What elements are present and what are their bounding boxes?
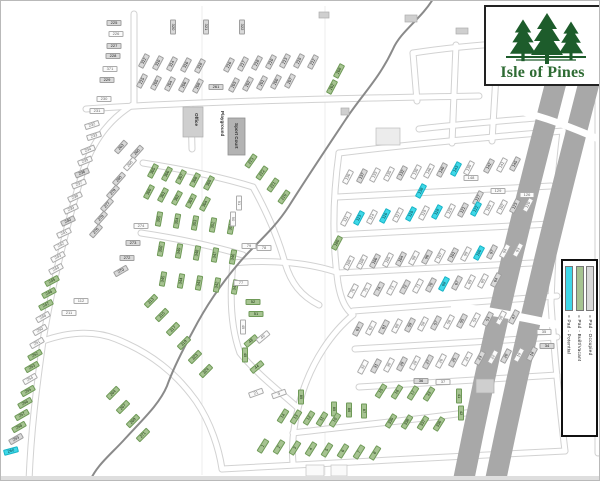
lot-pad: 99 (460, 246, 472, 262)
lot-pad: 111 (340, 211, 352, 227)
lot-pad: 107 (434, 248, 446, 264)
lot-pad: 47 (508, 309, 520, 325)
lot-pad: 251 (29, 337, 45, 350)
lot-pad: 86 (346, 403, 352, 418)
lot-pad: 252 (27, 349, 43, 362)
lot-pad: 274 (134, 223, 149, 229)
lot-pad: 138 (415, 183, 427, 199)
lot-pad: 21 (248, 388, 264, 399)
lot-pad: 34 (540, 343, 555, 349)
lot-pad: 106 (369, 253, 381, 269)
lot-pad: 321 (203, 20, 209, 35)
lot-pad: 233 (86, 131, 102, 141)
lot-pad: 129 (491, 188, 506, 194)
lot-pad: 30 (383, 357, 395, 373)
lot-pad: 53 (482, 311, 494, 327)
lot-pad: 309 (203, 175, 215, 191)
lot-pad: 123 (509, 198, 521, 214)
lot-pad: 67 (451, 275, 463, 291)
lot-pad: 339 (384, 413, 397, 429)
lot-pad: 44 (249, 360, 264, 374)
lot-pad: 345 (159, 271, 168, 287)
lot-pad: 148 (464, 175, 479, 181)
lot-pad: 17 (406, 385, 419, 401)
lot-pad: 52 (246, 299, 261, 305)
lot-pad: 78 (257, 245, 272, 251)
lot-pad: 245 (44, 275, 60, 287)
lot-pad: 319 (177, 336, 192, 351)
lot-pad: 74 (373, 281, 385, 297)
lot-pad: 36 (414, 378, 429, 384)
lot-pad: 312 (138, 53, 150, 69)
lot-pad: 29 (396, 356, 408, 372)
lot-pad: 240 (60, 215, 76, 227)
lot-pad: 267 (116, 400, 131, 415)
lot-pad: 222 (255, 165, 269, 181)
lot-pad: 248 (35, 311, 51, 324)
lot-pad: 60 (391, 318, 403, 334)
lot-pad: 263 (114, 139, 128, 154)
lot-pad: 246 (41, 287, 57, 299)
lot-pad: 354 (173, 213, 182, 229)
lot-pad: 19 (513, 347, 525, 363)
lot-pad: 226 (109, 31, 124, 37)
lot-pad: 269 (126, 414, 141, 429)
lot-pad: 45 (242, 348, 248, 363)
lot-pad: 347 (211, 247, 220, 263)
lot-pad: 50 (495, 310, 507, 326)
lot-pad: 277 (100, 197, 114, 212)
lot-pad: 350 (157, 241, 166, 257)
lot-pad: 234 (80, 144, 96, 155)
lot-pad: 318 (194, 58, 206, 74)
lot-pad: 216 (223, 57, 235, 73)
lot-pad: 9 (271, 389, 287, 400)
lot-pad: 54 (469, 312, 481, 328)
lot-pad: 313 (144, 294, 159, 309)
lot-pad: 14 (276, 408, 289, 424)
park-map-page: Office Playground Sport Court 2252262272… (0, 0, 600, 481)
lot-pad: 27 (422, 354, 434, 370)
lot-pad: 79 (242, 243, 257, 249)
lot-pad: 225 (107, 20, 122, 26)
lot-pad: 271 (136, 428, 151, 443)
lot-pad: 116 (379, 208, 391, 224)
lot-pad: 243 (50, 251, 66, 263)
lot-pad: 57 (430, 315, 442, 331)
lot-pad: 55 (456, 313, 468, 329)
lot-pad: 262 (326, 79, 338, 95)
lot-pad: 337 (416, 415, 429, 431)
lot-pad: 65 (477, 273, 489, 289)
lot-pad: 202 (242, 76, 254, 92)
lot-pad: 102 (496, 199, 508, 215)
lot-pad: 223 (244, 153, 258, 169)
lot-pad: 272 (120, 255, 135, 261)
lot-pad: 343 (195, 275, 204, 291)
lot-pad: 32 (357, 359, 369, 375)
lot-pad: 93 (512, 242, 524, 258)
lot-pad: 278 (94, 210, 108, 225)
lot-pad: 257 (14, 409, 30, 422)
lot-pad: 308 (189, 172, 201, 188)
lot-pad: 100 (473, 245, 485, 261)
lot-pad: 253 (24, 361, 40, 374)
lot-pad: 180 (331, 235, 343, 251)
lot-pad: 208 (192, 78, 204, 94)
lot-pad: 235 (77, 155, 93, 166)
legend-item-potential: = Pad - Potential (564, 266, 574, 435)
lot-pad: 219 (293, 53, 305, 69)
lot-pad: 109 (343, 255, 355, 271)
map-legend: = Pad - Potential = Pad - Built/Vacant =… (561, 259, 598, 437)
lot-pad: 322 (239, 20, 245, 35)
lot-pad: 56 (443, 314, 455, 330)
lot-pad: 259 (8, 433, 24, 446)
lot-pad: 314 (166, 56, 178, 72)
lot-pad: 218 (251, 55, 263, 71)
lot-pad: 371 (103, 66, 118, 72)
lot-pad: 31 (370, 358, 382, 374)
legend-item-occupied: = Pad - Occupied (585, 266, 595, 435)
lot-pad: 35 (537, 329, 552, 335)
lot-pad: 11 (315, 411, 328, 427)
lot-pad: 63 (352, 321, 364, 337)
lot-pad: 307 (175, 169, 187, 185)
lot-pad: 207 (284, 73, 296, 89)
lot-pad: 247 (38, 299, 54, 311)
lot-pad: 256 (17, 397, 33, 410)
lot-pad: 108 (356, 254, 368, 270)
lot-pad: 26 (435, 353, 447, 369)
legend-swatch-occupied (586, 266, 594, 311)
lot-pad: 232 (84, 120, 100, 130)
lot-pad: 33 (422, 386, 435, 402)
lot-pad: 205 (150, 75, 162, 91)
lot-pad: 260 (3, 446, 19, 456)
lot-pad: 203 (228, 77, 240, 93)
lot-pad: 239 (63, 203, 79, 215)
lot-pad: 42 (458, 406, 464, 421)
lot-pad: 104 (395, 251, 407, 267)
lot-pad: 238 (67, 191, 83, 203)
lot-pad: 15 (374, 383, 387, 399)
lot-pad: 72 (399, 279, 411, 295)
lot-pad: 270 (113, 265, 129, 278)
legend-item-built-vacant: = Pad - Built/Vacant (575, 266, 585, 435)
lot-pad: 16 (390, 384, 403, 400)
pine-trees-icon (486, 7, 600, 65)
lot-pad: 141 (496, 157, 508, 173)
lot-pad: 317 (166, 322, 181, 337)
lot-pad: 200 (270, 74, 282, 90)
lot-pad: 261 (209, 84, 224, 90)
lot-pad: 305 (147, 163, 159, 179)
lot-pad: 90 (230, 212, 236, 227)
lot-pad: 117 (392, 207, 404, 223)
lot-pad: 94 (499, 243, 511, 259)
lot-pad: 98 (408, 250, 420, 266)
lot-pad: 76 (347, 283, 359, 299)
lot-pad: 146 (423, 163, 435, 179)
lot-pad: 344 (177, 273, 186, 289)
lot-pad: 206 (178, 77, 190, 93)
lot-pad: 237 (71, 178, 87, 189)
lot-pad: 346 (229, 249, 238, 265)
lot-pad: 280 (112, 171, 126, 186)
lot-pad: 105 (382, 252, 394, 268)
lot-pad: 135 (383, 166, 395, 182)
lot-pad: 71 (412, 278, 424, 294)
lot-pad: 18 (526, 346, 538, 362)
lot-pad: 241 (56, 227, 72, 239)
lot-pad: 336 (432, 416, 445, 432)
lot-pad: 310 (152, 55, 164, 71)
lot-pad: 229 (100, 77, 115, 83)
lot-pad: 268 (333, 63, 345, 79)
lot-pad: 236 (74, 167, 90, 178)
lot-pad: 145 (509, 156, 521, 172)
lot-pad: 258 (11, 421, 27, 434)
lot-pad: 315 (155, 308, 170, 323)
lot-pad: 316 (180, 57, 192, 73)
lot-pad: 215 (136, 73, 148, 89)
lot-pad: 23 (474, 350, 486, 366)
lot-pad: 7 (352, 444, 365, 460)
lot-pad: 266 (123, 156, 137, 171)
lot-pad: 120 (522, 197, 534, 213)
logo-box: Isle of Pines (484, 5, 600, 86)
lot-pad: 353 (191, 215, 200, 231)
lot-pad: 130 (410, 164, 422, 180)
lot-pad: 87 (361, 404, 367, 419)
lot-pad: 77 (234, 280, 249, 286)
lot-pad: 22 (487, 349, 499, 365)
lot-pad: 59 (404, 317, 416, 333)
lot-pad: 61 (378, 319, 390, 335)
lot-pad: 103 (483, 200, 495, 216)
lot-pad: 41 (456, 389, 462, 404)
lot-pad: 230 (97, 96, 112, 102)
lot-pad: 89 (298, 390, 304, 405)
lot-pad: 118 (431, 204, 443, 220)
lot-pad: 228 (106, 53, 121, 59)
lot-pad: 264 (106, 386, 121, 401)
lot-pad: 68 (438, 276, 450, 292)
lot-pad: 300 (143, 184, 155, 200)
lot-pad: 75 (360, 282, 372, 298)
lot-pad: 70 (425, 277, 437, 293)
lot-pad: 276 (89, 223, 103, 238)
lot-pad: 133 (369, 167, 381, 183)
lot-pad: 227 (107, 43, 122, 49)
lot-pad: 349 (175, 243, 184, 259)
lot-pad: 279 (106, 184, 120, 199)
lot-pad: 320 (170, 20, 176, 35)
legend-label-built-vacant: = Pad - Built/Vacant (577, 315, 582, 361)
lot-pad: 125 (444, 203, 456, 219)
lot-pad: 355 (155, 211, 164, 227)
lot-pad: 142 (483, 158, 495, 174)
lot-pad: 113 (353, 210, 365, 226)
lot-pad: 301 (157, 187, 169, 203)
park-logo-title: Isle of Pines (486, 64, 599, 82)
lot-pad: 137 (356, 168, 368, 184)
lot-pad: 204 (164, 76, 176, 92)
lot-pad: 6 (336, 443, 349, 459)
lot-pad: 244 (48, 263, 64, 275)
lot-pad: 304 (199, 196, 211, 212)
lot-pad: 342 (213, 277, 222, 293)
lot-pad: 64 (490, 272, 502, 288)
lot-pad: 132 (396, 165, 408, 181)
lot-pad: 4 (304, 441, 317, 457)
lot-pad: 136 (342, 169, 354, 185)
lot-pad: 112 (74, 298, 89, 304)
lot-pad: 62 (365, 320, 377, 336)
lot-pad: 49 (240, 320, 246, 335)
lot-pad: 24 (461, 351, 473, 367)
lot-pad: 210 (265, 54, 277, 70)
lot-pad: 97 (486, 244, 498, 260)
lot-pad: 143 (450, 161, 462, 177)
lot-pad: 213 (279, 53, 291, 69)
lot-pad: 12 (302, 410, 315, 426)
lot-pad: 212 (307, 54, 319, 70)
lot-pad: 324 (199, 364, 214, 379)
lot-pad: 121 (457, 202, 469, 218)
lot-pad: 348 (193, 245, 202, 261)
lot-pad: 201 (256, 75, 268, 91)
legend-label-potential: = Pad - Potential (566, 315, 571, 354)
lot-pad: 46 (255, 330, 270, 344)
lot-pad: 101 (447, 247, 459, 263)
lot-pad: 254 (22, 373, 38, 386)
lot-pad: 250 (32, 324, 48, 337)
lot-pad: 302 (171, 190, 183, 206)
lot-pad: 273 (126, 240, 141, 246)
lot-pad: 20 (500, 348, 512, 364)
lot-pad: 306 (161, 166, 173, 182)
lot-pad: 37 (436, 379, 451, 385)
lot-pad: 69 (464, 274, 476, 290)
lot-pad: 3 (288, 440, 301, 456)
lot-pad: 8 (368, 445, 381, 461)
lot-pad: 28 (409, 355, 421, 371)
lot-pad: 96 (421, 249, 433, 265)
lot-pad: 323 (188, 350, 203, 365)
lot-pad: 255 (20, 385, 36, 398)
lot-pad: 58 (417, 316, 429, 332)
lot-pad: 2 (272, 439, 285, 455)
lot-pad: 91 (236, 196, 242, 211)
lot-pad: 126 (520, 192, 535, 198)
lot-pad: 140 (436, 162, 448, 178)
lot-pad: 217 (237, 56, 249, 72)
lot-pad: 119 (418, 205, 430, 221)
lot-pad: 110 (405, 206, 417, 222)
lot-pad: 13 (289, 409, 302, 425)
lot-pad: 242 (53, 239, 69, 251)
lot-pad: 221 (266, 177, 280, 193)
legend-swatch-built-vacant (576, 266, 584, 311)
lot-pad: 352 (209, 217, 218, 233)
lot-pad: 114 (366, 209, 378, 225)
lot-pad: 139 (463, 160, 475, 176)
lot-pad: 73 (386, 280, 398, 296)
legend-swatch-potential (565, 266, 573, 311)
lot-pad: 1 (256, 438, 269, 454)
lot-pad: 211 (62, 310, 77, 316)
lot-pad: 25 (448, 352, 460, 368)
lot-pad: 5 (320, 442, 333, 458)
lot-pad: 231 (90, 108, 105, 114)
lot-pad: 220 (277, 189, 291, 205)
lot-pad: 303 (185, 193, 197, 209)
legend-label-occupied: = Pad - Occupied (588, 315, 593, 355)
lot-pad: 51 (249, 311, 264, 317)
lot-pad: 338 (400, 414, 413, 430)
